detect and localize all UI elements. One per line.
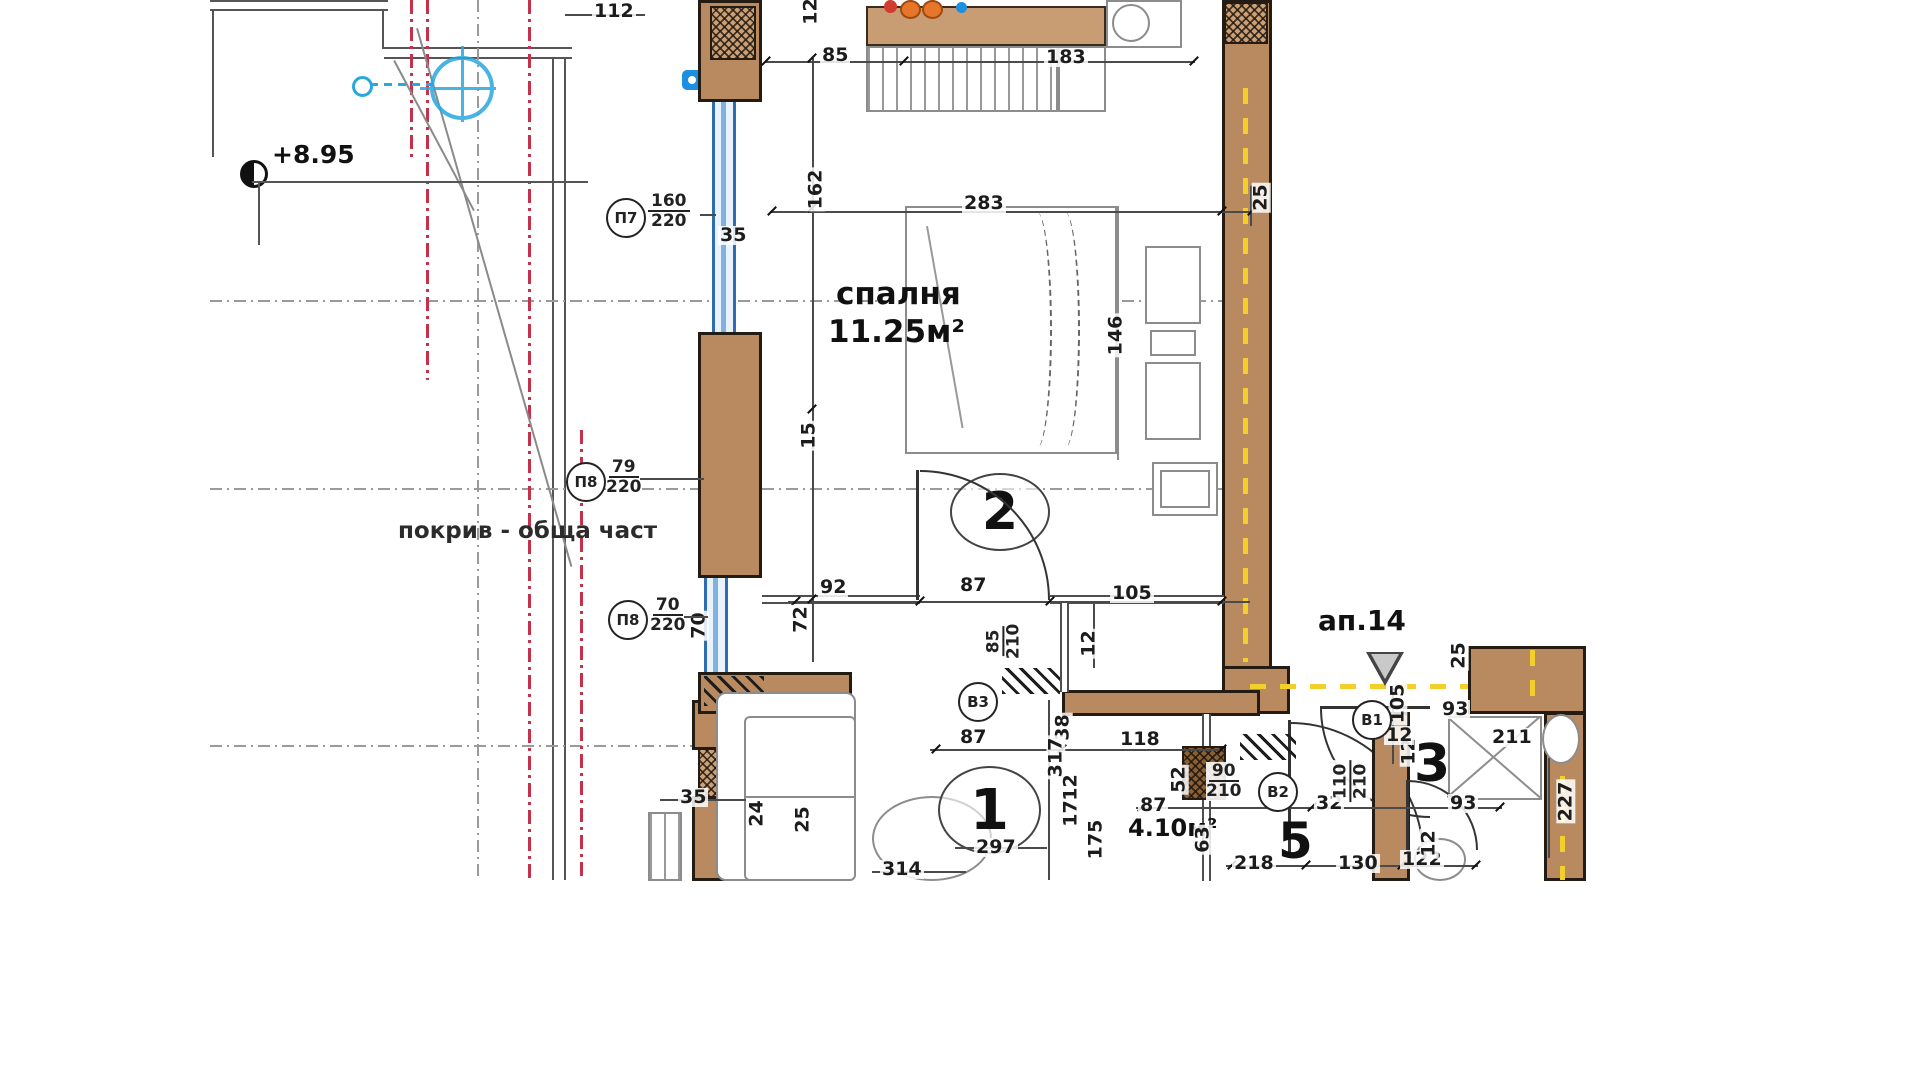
dimension-line [1048,700,1050,880]
dimension-label: 25 [1252,182,1271,212]
axis-line-vertical [477,0,479,880]
dimension-label: 118 [1118,730,1162,749]
dimension-label: 35 [678,788,708,807]
roof-note: покрив - обща част [398,518,657,544]
floor-plan-sheet: +8.95 покрив - обща част спалня 11.25м² … [0,0,1920,1080]
door-tag-circle: В3 [958,682,998,722]
level-marker-icon [240,160,268,188]
dimension-line [812,58,814,662]
window [712,100,736,338]
dimension-label: 63 [1194,824,1213,854]
dimension-label: 85 [820,46,850,65]
door-tag-size: 85210 [984,624,1023,660]
dimension-label: 227 [1556,780,1575,824]
room-area: 11.25м² [828,314,965,350]
window-tag-leader [640,478,704,480]
radiator [648,812,682,881]
level-leader-line [258,183,260,245]
dimension-label: 112 [592,2,636,21]
building-outline [210,9,388,11]
dimension-label: 93 [1440,700,1470,719]
dimension-line [788,601,1250,603]
survey-crosshair-icon [430,56,494,120]
radiator-inner [1160,470,1210,508]
dimension-label: 72 [792,604,811,634]
bed-blanket-fold [1022,212,1052,448]
dimension-label: 17 [1062,798,1081,828]
dimension-label: 87 [958,728,988,747]
stove-burner-icon [900,0,921,19]
dimension-label: 92 [818,578,848,597]
threshold-hatch [1240,734,1296,760]
dimension-label: 52 [1170,764,1189,794]
dimension-label: 15 [800,420,819,450]
dimension-label: 24 [748,798,767,828]
partition-wall [1060,602,1069,692]
dimension-label: 146 [1106,314,1125,358]
dimension-line [930,749,1222,751]
entrance-triangle-icon [1371,654,1399,679]
dimension-label: 25 [794,804,813,834]
dimension-label: 70 [690,610,709,640]
room-name: спалня [836,276,961,312]
dimension-label: 105 [1110,584,1154,603]
wardrobe-hangers [866,46,1058,112]
dimension-label: 175 [1086,818,1105,862]
door-tag-size: 110210 [1331,761,1370,803]
nightstand [1145,246,1201,324]
dimension-label: 211 [1490,728,1534,747]
dimension-label: 12 [1420,828,1439,858]
plan-area: +8.95 покрив - обща част спалня 11.25м² … [0,0,1920,881]
apartment-boundary-yellow [1243,88,1248,662]
interior-wall [1062,690,1260,716]
door-tag-circle: В1 [1352,700,1392,740]
dimension-label: 183 [1044,48,1088,67]
shelf [1150,330,1196,356]
window-tag-circle: П8 [566,462,606,502]
concrete-column-hatch [710,6,756,60]
axis-line-horizontal [210,745,702,747]
dimension-label: 25 [1450,640,1469,670]
wall-hatch [1002,668,1060,694]
window-tag-leader [700,214,716,216]
nightstand [1145,362,1201,440]
dimension-label: 35 [718,226,748,245]
window-tag-circle: П7 [606,198,646,238]
survey-point-icon [352,76,373,97]
building-outline [382,9,384,49]
dimension-label: 130 [1336,854,1380,873]
dimension-label: 297 [974,838,1018,857]
dimension-label: 218 [1232,854,1276,873]
door-leaf [916,470,919,600]
window-tag-leader [684,616,708,618]
exterior-wall [698,332,762,578]
roof-edge-line [410,0,413,162]
building-outline [210,0,388,2]
dimension-label: 87 [1138,796,1168,815]
washing-machine-icon [1112,4,1150,42]
dimension-label: 314 [880,860,924,879]
dimension-label: 93 [1448,794,1478,813]
building-outline [212,9,214,157]
bed-blanket-fold [1050,212,1080,448]
dimension-label: 162 [806,168,825,212]
dimension-label: 12 [1080,628,1099,658]
washbasin [1542,714,1580,764]
window-tag-circle: П8 [608,600,648,640]
roof-edge-line [528,0,531,880]
dimension-label: 12 [802,0,821,27]
window-tag-size: 160220 [648,192,690,231]
dimension-label: 283 [962,194,1006,213]
exterior-wall [1468,646,1586,714]
stove-burner-icon [922,0,943,19]
door-tag-size: 90210 [1206,762,1242,801]
level-value: +8.95 [272,140,355,169]
apartment-boundary-yellow [1530,650,1535,710]
dimension-line [770,211,1252,213]
window-tag-size: 79220 [606,458,642,497]
apartment-label: ап.14 [1318,604,1406,637]
dimension-line [1548,758,1550,858]
dimension-label: 87 [958,576,988,595]
sink-dot-icon [956,2,967,13]
level-leader-line [252,181,588,183]
apartment-boundary-yellow [1250,684,1472,689]
door-tag-circle: В2 [1258,772,1298,812]
stove-burner-icon [884,0,897,13]
concrete-column-hatch [1224,2,1268,44]
window-tag-size: 70220 [650,596,686,635]
